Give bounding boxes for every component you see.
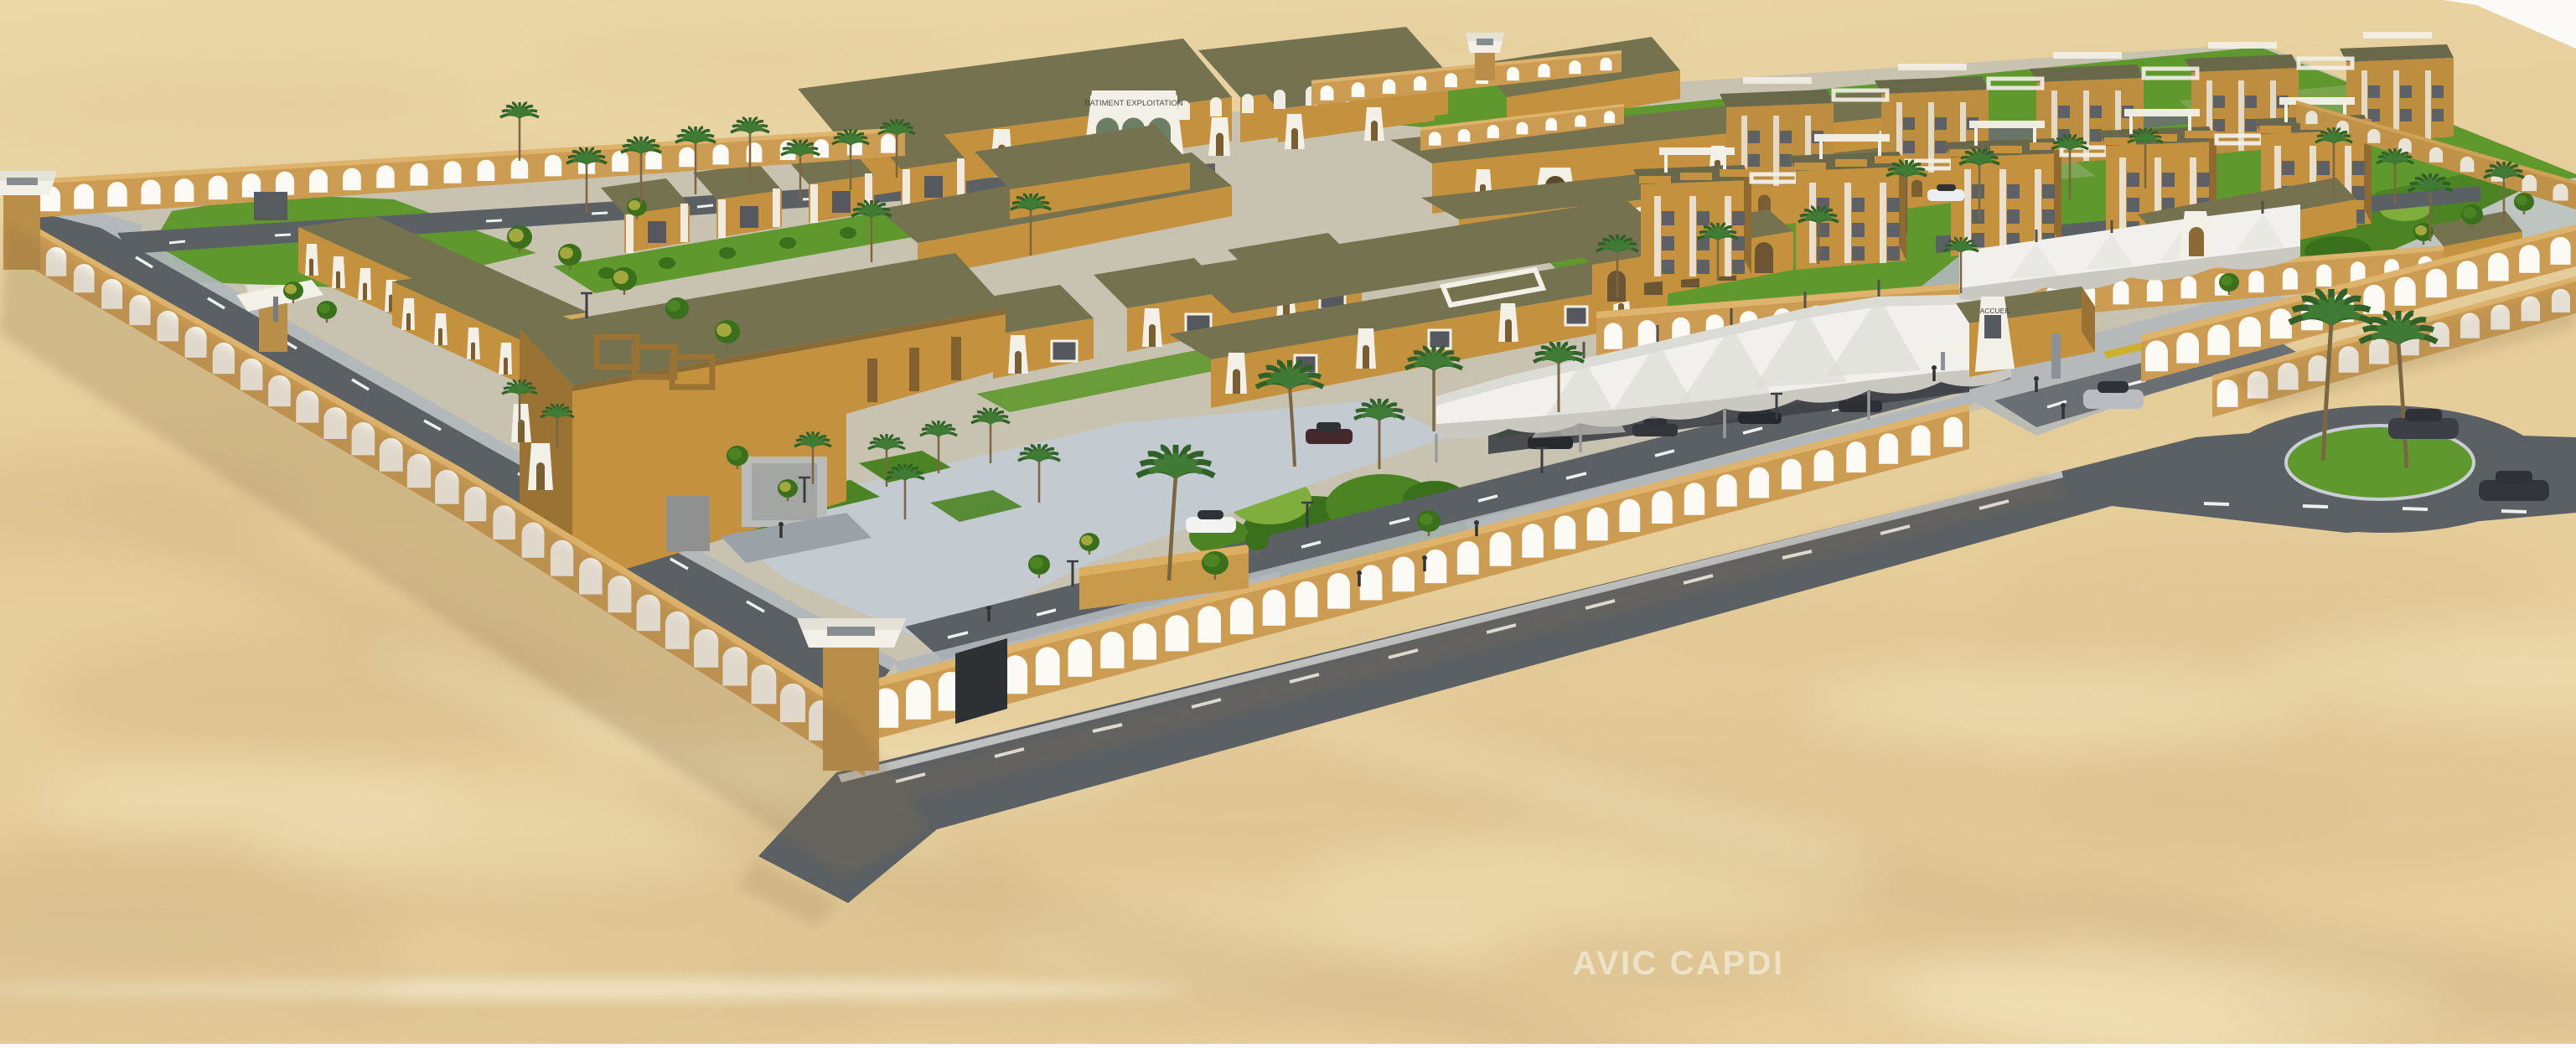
- svg-text:AVIC CAPDI: AVIC CAPDI: [1572, 945, 1784, 982]
- svg-text:ACCUEIL: ACCUEIL: [1980, 307, 2011, 315]
- svg-text:BATIMENT EXPLOITATION: BATIMENT EXPLOITATION: [1084, 99, 1183, 108]
